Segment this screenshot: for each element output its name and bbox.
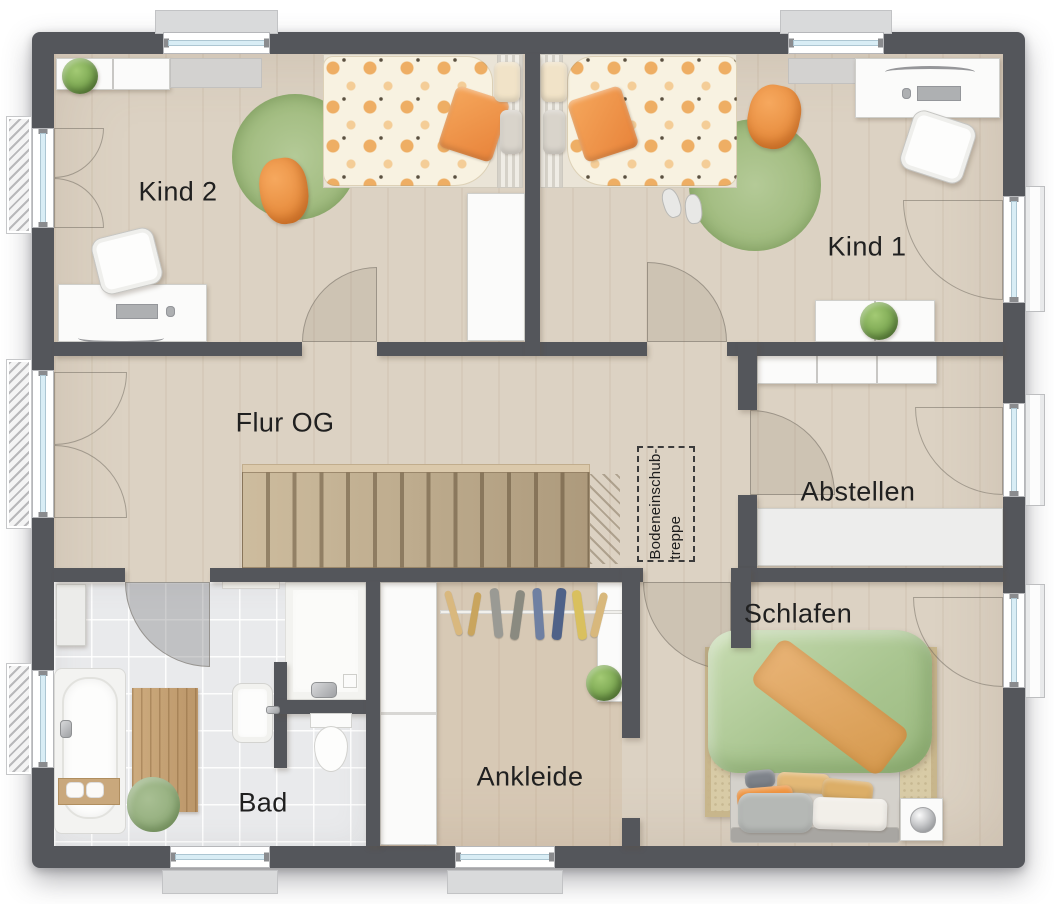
wall-kind2-kind1-divider (525, 54, 540, 356)
ankleide-wardrobe-cabinet (380, 582, 437, 845)
door-swing-kind1 (647, 262, 727, 342)
window-glass (40, 375, 46, 513)
wall-kind1-abstellen (727, 342, 1003, 356)
kind2-wardrobe (467, 193, 525, 341)
radiator-left-flur (7, 360, 31, 528)
kind2-pillow-gray (500, 110, 522, 154)
window-left-flur (32, 370, 54, 518)
shower-fixture (311, 682, 337, 698)
window-glass (40, 133, 46, 223)
kind1-lowboard-plant (860, 302, 898, 340)
floor-plan-canvas: Bodeneinschub- treppe (0, 0, 1054, 904)
window-left-kind2 (32, 128, 54, 228)
schlafen-pillow-white (812, 797, 887, 832)
door-swing-kind2 (302, 267, 377, 342)
kind1-pillow-gray (543, 110, 565, 154)
window-sill-top-kind2 (155, 10, 278, 34)
abstellen-shelf (757, 508, 1003, 566)
wall-kind2-flur-b (377, 342, 525, 356)
window-swing-abstellen-right (915, 407, 1003, 495)
window-right-schlafen (1003, 593, 1025, 688)
ankleide-plant (586, 665, 622, 701)
window-top-kind1 (788, 32, 884, 54)
kind1-mouse (902, 88, 911, 99)
bad-counter (275, 700, 366, 714)
window-right-abstellen (1003, 403, 1025, 497)
window-swing-flur-left-bottom (54, 445, 127, 518)
kind1-pillow-small (541, 62, 567, 102)
wall-kind1-flur-a (540, 342, 647, 356)
kind1-slipper-left (659, 186, 684, 220)
wall-flur-abstellen-upper (738, 342, 757, 410)
bathtub-faucet (60, 720, 72, 738)
kind2-window-board (170, 58, 262, 88)
shower-drain (343, 674, 357, 688)
window-sill-top-kind1 (780, 10, 892, 34)
window-bottom-bad (170, 846, 270, 868)
room-label-abstellen: Abstellen (801, 477, 916, 508)
floor-area: Bodeneinschub- treppe (54, 54, 1003, 846)
window-swing-kind1-right (903, 200, 1003, 300)
window-left-bad (32, 670, 54, 768)
window-sill-bottom-ankleide (447, 870, 563, 894)
caddy-towel-1 (66, 782, 84, 798)
bathtub (54, 668, 126, 834)
wall-ankleide-schlafen-upper (622, 568, 640, 738)
window-glass (1011, 201, 1017, 298)
window-glass (175, 854, 265, 860)
room-label-kind1: Kind 1 (828, 232, 907, 263)
wall-bad-ankleide (366, 582, 380, 846)
wall-flur-bad-a (54, 568, 125, 582)
bad-partition-wall (274, 662, 287, 768)
schlafen-sheet-gray (738, 793, 813, 833)
window-glass (460, 854, 550, 860)
window-top-kind2 (163, 32, 270, 54)
room-label-kind2: Kind 2 (139, 177, 218, 208)
bad-green-towels (127, 777, 180, 832)
room-label-flur: Flur OG (236, 408, 335, 439)
radiator-left-bad (7, 664, 31, 774)
radiator-right-kind1 (1025, 186, 1045, 312)
kind2-mouse (166, 306, 175, 317)
window-glass (168, 40, 265, 46)
kind2-keyboard (116, 304, 158, 319)
washbasin-faucet (266, 706, 280, 714)
radiator-left-kind2 (7, 117, 31, 233)
exterior-walls: Bodeneinschub- treppe (32, 32, 1025, 868)
bad-cabinet (56, 584, 86, 646)
kind2-pillow-small (494, 62, 520, 102)
wall-flur-ankleide (210, 568, 643, 582)
window-glass (1011, 408, 1017, 492)
room-label-bad: Bad (238, 788, 287, 819)
window-swing-kind2-left-bottom (54, 178, 104, 228)
wall-abstellen-schlafen (731, 568, 1003, 582)
room-label-schlafen: Schlafen (744, 599, 852, 630)
window-bottom-ankleide (455, 846, 555, 868)
window-glass (40, 675, 46, 763)
window-sill-bottom-bad (162, 870, 278, 894)
staircase (242, 472, 590, 568)
attic-hatch-outline: Bodeneinschub- treppe (637, 446, 695, 562)
radiator-right-abstellen (1025, 394, 1045, 506)
window-right-kind1 (1003, 196, 1025, 303)
schlafen-bedside-lamp (910, 807, 936, 833)
kind1-keyboard (917, 86, 961, 101)
kind1-window-board (788, 58, 864, 84)
radiator-right-schlafen (1025, 584, 1045, 698)
room-label-ankleide: Ankleide (477, 762, 584, 793)
window-swing-kind2-left-top (54, 128, 104, 178)
window-swing-flur-left-top (54, 372, 127, 445)
stairs-cut-hatch (590, 474, 620, 564)
kind1-monitor (885, 66, 975, 78)
abstellen-cabinet (757, 352, 937, 384)
kind2-plant (62, 58, 98, 94)
wall-ankleide-schlafen-lower (622, 818, 640, 846)
window-glass (1011, 598, 1017, 683)
kind1-desk-chair (897, 107, 979, 186)
wall-kind2-flur-a (54, 342, 302, 356)
window-glass (793, 40, 879, 46)
caddy-towel-2 (86, 782, 104, 798)
attic-hatch-label: Bodeneinschub- treppe (646, 448, 687, 559)
